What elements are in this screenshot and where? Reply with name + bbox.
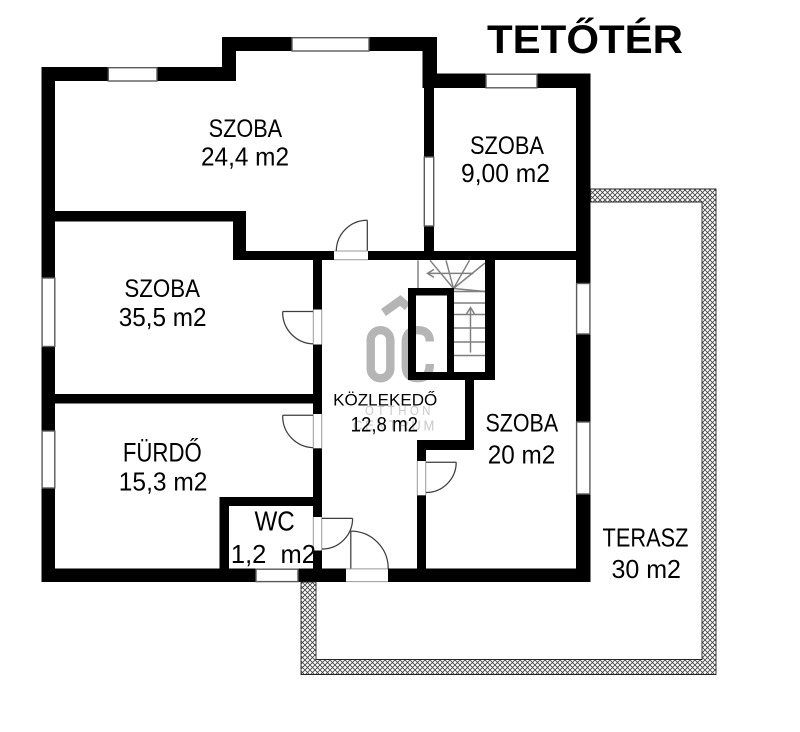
svg-text:SZOBA: SZOBA bbox=[209, 115, 283, 143]
svg-text:30 m2: 30 m2 bbox=[611, 554, 681, 584]
svg-text:12,8 m2: 12,8 m2 bbox=[351, 413, 418, 436]
svg-text:SZOBA: SZOBA bbox=[470, 132, 544, 160]
svg-text:9,00 m2: 9,00 m2 bbox=[461, 158, 550, 188]
svg-text:FÜRDŐ: FÜRDŐ bbox=[123, 437, 202, 467]
svg-text:KÖZLEKEDŐ: KÖZLEKEDŐ bbox=[333, 390, 437, 409]
svg-text:SZOBA: SZOBA bbox=[124, 275, 200, 303]
svg-text:15,3 m2: 15,3 m2 bbox=[119, 467, 208, 497]
svg-text:WC: WC bbox=[254, 505, 294, 536]
svg-text:35,5 m2: 35,5 m2 bbox=[119, 302, 207, 332]
svg-text:24,4 m2: 24,4 m2 bbox=[201, 142, 289, 172]
svg-text:TERASZ: TERASZ bbox=[603, 525, 689, 553]
svg-text:1,2 m2: 1,2 m2 bbox=[231, 539, 316, 569]
svg-text:20 m2: 20 m2 bbox=[488, 440, 556, 470]
svg-text:SZOBA: SZOBA bbox=[485, 410, 558, 438]
svg-text:TETŐTÉR: TETŐTÉR bbox=[487, 16, 683, 62]
